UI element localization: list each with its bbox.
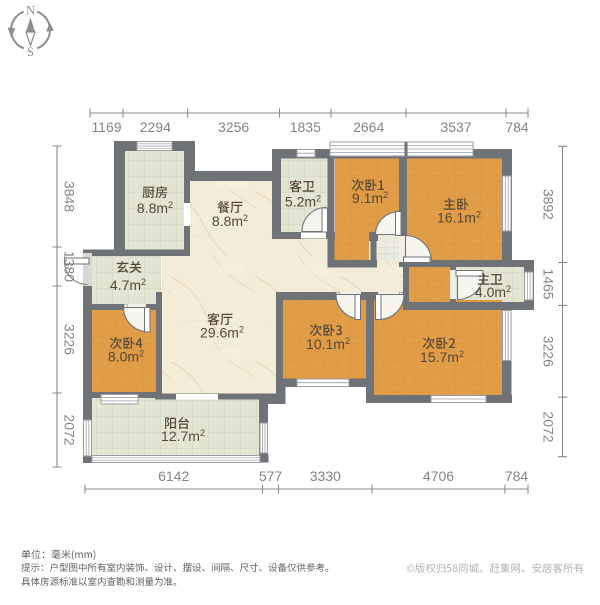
svg-text:2664: 2664 xyxy=(353,119,384,135)
svg-text:1835: 1835 xyxy=(290,119,321,135)
svg-text:3848: 3848 xyxy=(62,181,78,212)
svg-text:S: S xyxy=(27,45,34,59)
svg-text:N: N xyxy=(26,3,35,17)
svg-text:2072: 2072 xyxy=(541,411,557,442)
svg-text:8.0m2: 8.0m2 xyxy=(108,349,144,365)
svg-text:3226: 3226 xyxy=(62,324,78,355)
svg-text:784: 784 xyxy=(505,468,529,484)
svg-text:4.0m2: 4.0m2 xyxy=(475,284,511,300)
svg-text:1169: 1169 xyxy=(91,119,121,135)
svg-text:784: 784 xyxy=(505,119,529,135)
svg-text:2294: 2294 xyxy=(140,119,171,135)
svg-text:3256: 3256 xyxy=(218,119,249,135)
svg-text:6142: 6142 xyxy=(158,468,189,484)
svg-text:4706: 4706 xyxy=(423,468,454,484)
svg-text:1465: 1465 xyxy=(541,268,557,299)
svg-text:15.7m2: 15.7m2 xyxy=(420,349,464,365)
svg-text:16.1m2: 16.1m2 xyxy=(437,210,481,226)
svg-text:577: 577 xyxy=(259,468,283,484)
svg-text:8.8m2: 8.8m2 xyxy=(212,213,248,229)
svg-text:10.1m2: 10.1m2 xyxy=(306,336,350,352)
svg-text:3537: 3537 xyxy=(440,119,471,135)
svg-text:5.2m2: 5.2m2 xyxy=(285,194,321,210)
svg-text:29.6m2: 29.6m2 xyxy=(200,325,244,341)
svg-text:1380: 1380 xyxy=(62,251,78,282)
svg-text:8.8m2: 8.8m2 xyxy=(137,200,173,216)
svg-text:3330: 3330 xyxy=(310,468,341,484)
svg-text:9.1m2: 9.1m2 xyxy=(352,190,388,206)
svg-text:12.7m2: 12.7m2 xyxy=(161,428,205,444)
svg-text:3892: 3892 xyxy=(541,189,557,220)
svg-text:2072: 2072 xyxy=(62,414,78,445)
svg-text:3226: 3226 xyxy=(541,336,557,367)
svg-text:4.7m2: 4.7m2 xyxy=(110,277,146,293)
